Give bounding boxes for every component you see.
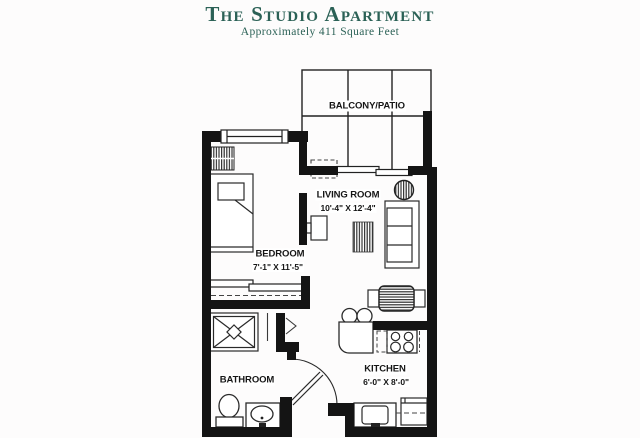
kitchen-dimensions: 6'-0" X 8'-0" xyxy=(362,377,410,387)
entry-door xyxy=(290,359,337,405)
bathroom-sink xyxy=(246,403,280,428)
wall-balcony-right xyxy=(423,111,432,172)
kitchen-counter xyxy=(339,322,373,353)
wall-bath-bottom xyxy=(202,427,292,437)
sofa xyxy=(385,201,419,268)
wall-balcony-door-right xyxy=(408,166,432,175)
kitchen-label: KITCHEN xyxy=(363,364,407,375)
wall-balcony-door-left xyxy=(299,166,338,175)
dining-table xyxy=(379,286,414,311)
balcony xyxy=(302,70,431,172)
closet xyxy=(210,280,303,296)
shower xyxy=(210,313,258,351)
floor-plan-page: The Studio Apartment Approximately 411 S… xyxy=(0,0,640,438)
toilet xyxy=(216,395,243,428)
balcony-sliding-door xyxy=(337,167,412,176)
closet-door-panel-1 xyxy=(210,280,253,287)
balcony-label: BALCONY/PATIO xyxy=(328,101,406,112)
dining-chair-right xyxy=(414,290,425,307)
wall-left-exterior xyxy=(202,131,211,437)
bathroom-label: BATHROOM xyxy=(219,375,275,386)
bed xyxy=(210,174,253,252)
bedroom-dimensions: 7'-1" X 11'-5" xyxy=(252,262,304,272)
stove xyxy=(377,330,420,353)
dining-set xyxy=(368,286,425,311)
living-room-label: LIVING ROOM xyxy=(316,190,381,201)
rug xyxy=(353,222,373,252)
closet-door-panel-2 xyxy=(249,284,303,291)
bed-pillow xyxy=(218,183,244,200)
wall-kitchen-left xyxy=(345,403,354,431)
balcony-outline xyxy=(302,70,431,172)
dining-chair-left xyxy=(368,290,379,307)
living-room-dimensions: 10'-4" X 12'-4" xyxy=(319,203,376,213)
bar-stools xyxy=(342,309,372,324)
wall-bathdoor-right xyxy=(276,313,285,343)
plant xyxy=(395,181,414,200)
floor-plan-drawing xyxy=(0,0,640,438)
dresser xyxy=(211,147,234,170)
entry-door-leaf-a xyxy=(290,372,320,402)
bedroom-label: BEDROOM xyxy=(255,249,306,260)
wall-right-exterior xyxy=(427,167,437,437)
wall-closet-bath-div xyxy=(202,300,310,309)
kitchen-sink xyxy=(354,403,396,428)
wall-kitchen-bottom xyxy=(345,427,437,437)
entry-door-swing-arc xyxy=(291,359,337,405)
kitchen-cabinet xyxy=(401,398,427,425)
bedroom-window xyxy=(221,130,288,143)
dishwasher-dashed xyxy=(377,331,387,352)
wall-living-left xyxy=(299,193,307,245)
wall-entry-jamb xyxy=(280,397,292,430)
wall-vestibule-l-v xyxy=(287,342,296,360)
wall-kitchen-top xyxy=(373,321,432,330)
armchair xyxy=(307,216,328,240)
entry-door-leaf-b xyxy=(293,375,323,405)
